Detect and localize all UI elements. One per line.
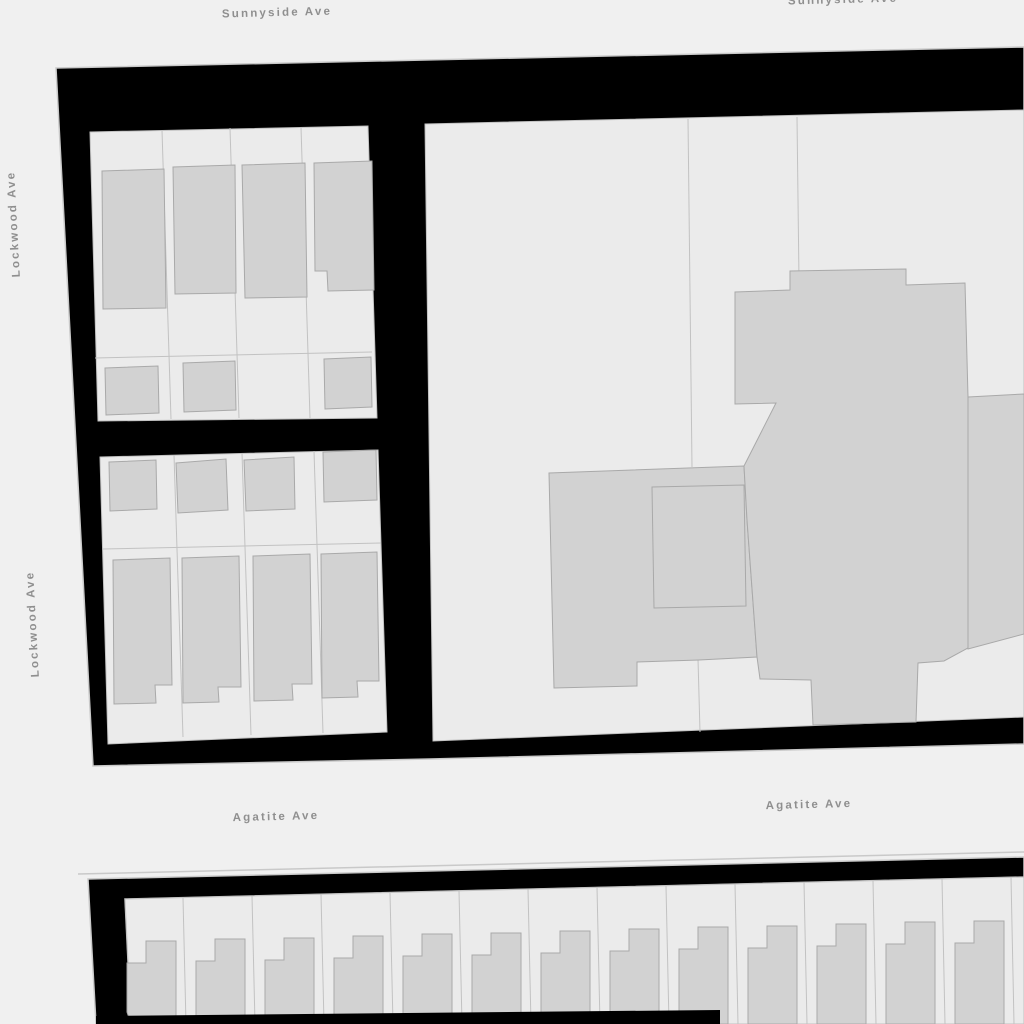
garage-footprint[interactable]: [176, 459, 228, 513]
map-viewport[interactable]: Sunnyside AveSunnyside AveLockwood AveLo…: [0, 0, 1024, 1024]
building-footprint[interactable]: [173, 165, 236, 294]
building-footprint[interactable]: [314, 161, 374, 291]
garage-footprint[interactable]: [324, 357, 372, 409]
garage-footprint[interactable]: [183, 361, 236, 412]
building-footprint[interactable]: [113, 558, 172, 704]
building-footprint[interactable]: [242, 163, 307, 298]
garage-footprint[interactable]: [323, 450, 377, 502]
building-footprint[interactable]: [102, 169, 166, 309]
building-footprint-wing[interactable]: [968, 394, 1024, 649]
street-label-agatite-ave-6: Agatite Ave: [766, 798, 853, 812]
building-footprint[interactable]: [182, 556, 241, 703]
building-footprint-large[interactable]: [735, 269, 968, 725]
street-label-agatite-ave-5: Agatite Ave: [233, 810, 320, 824]
building-footprint[interactable]: [253, 554, 312, 701]
garage-footprint[interactable]: [109, 460, 157, 511]
building-footprint[interactable]: [321, 552, 379, 698]
parcel-map[interactable]: Sunnyside AveSunnyside AveLockwood AveLo…: [0, 0, 1024, 1024]
garage-footprint[interactable]: [105, 366, 159, 415]
garage-footprint[interactable]: [244, 457, 295, 511]
